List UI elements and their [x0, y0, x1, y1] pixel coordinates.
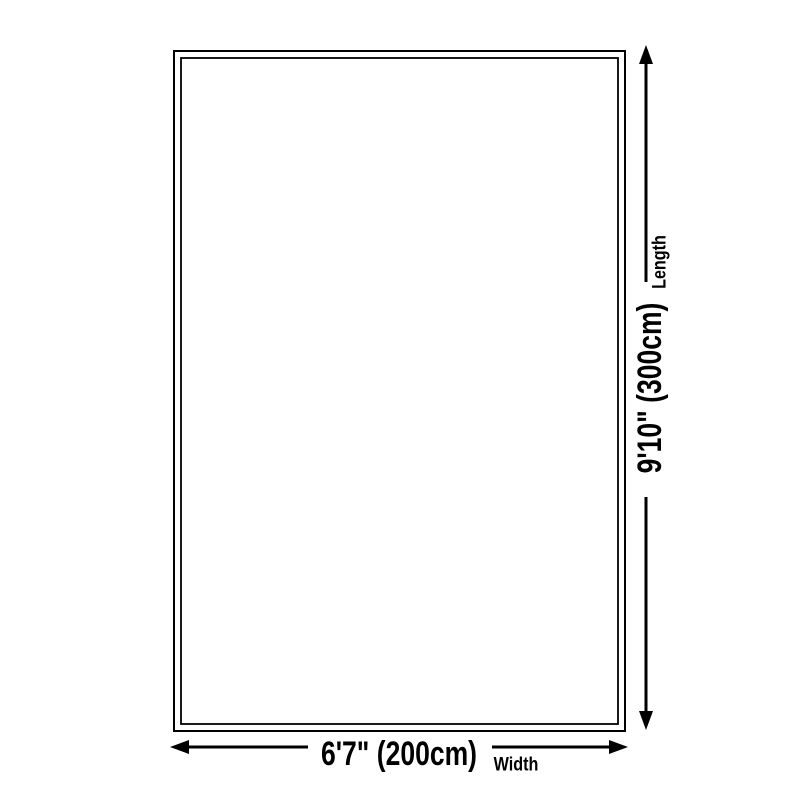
dimension-diagram: 6'7" (200cm) Width 9'10" (300cm) Length	[0, 0, 800, 800]
diagram-drawing	[0, 0, 800, 800]
arrowhead-left-icon	[170, 740, 189, 754]
length-dimension-value: 9'10" (300cm)	[633, 303, 667, 474]
arrowhead-right-icon	[609, 740, 628, 754]
rug-outline-outer-border	[174, 51, 625, 731]
width-dimension-value: 6'7" (200cm)	[321, 737, 477, 771]
arrowhead-down-icon	[639, 711, 653, 730]
rug-outline-inner-border	[181, 58, 618, 724]
width-dimension-label: Width	[494, 756, 539, 775]
arrowhead-up-icon	[639, 45, 653, 64]
length-dimension-label: Length	[651, 235, 670, 289]
